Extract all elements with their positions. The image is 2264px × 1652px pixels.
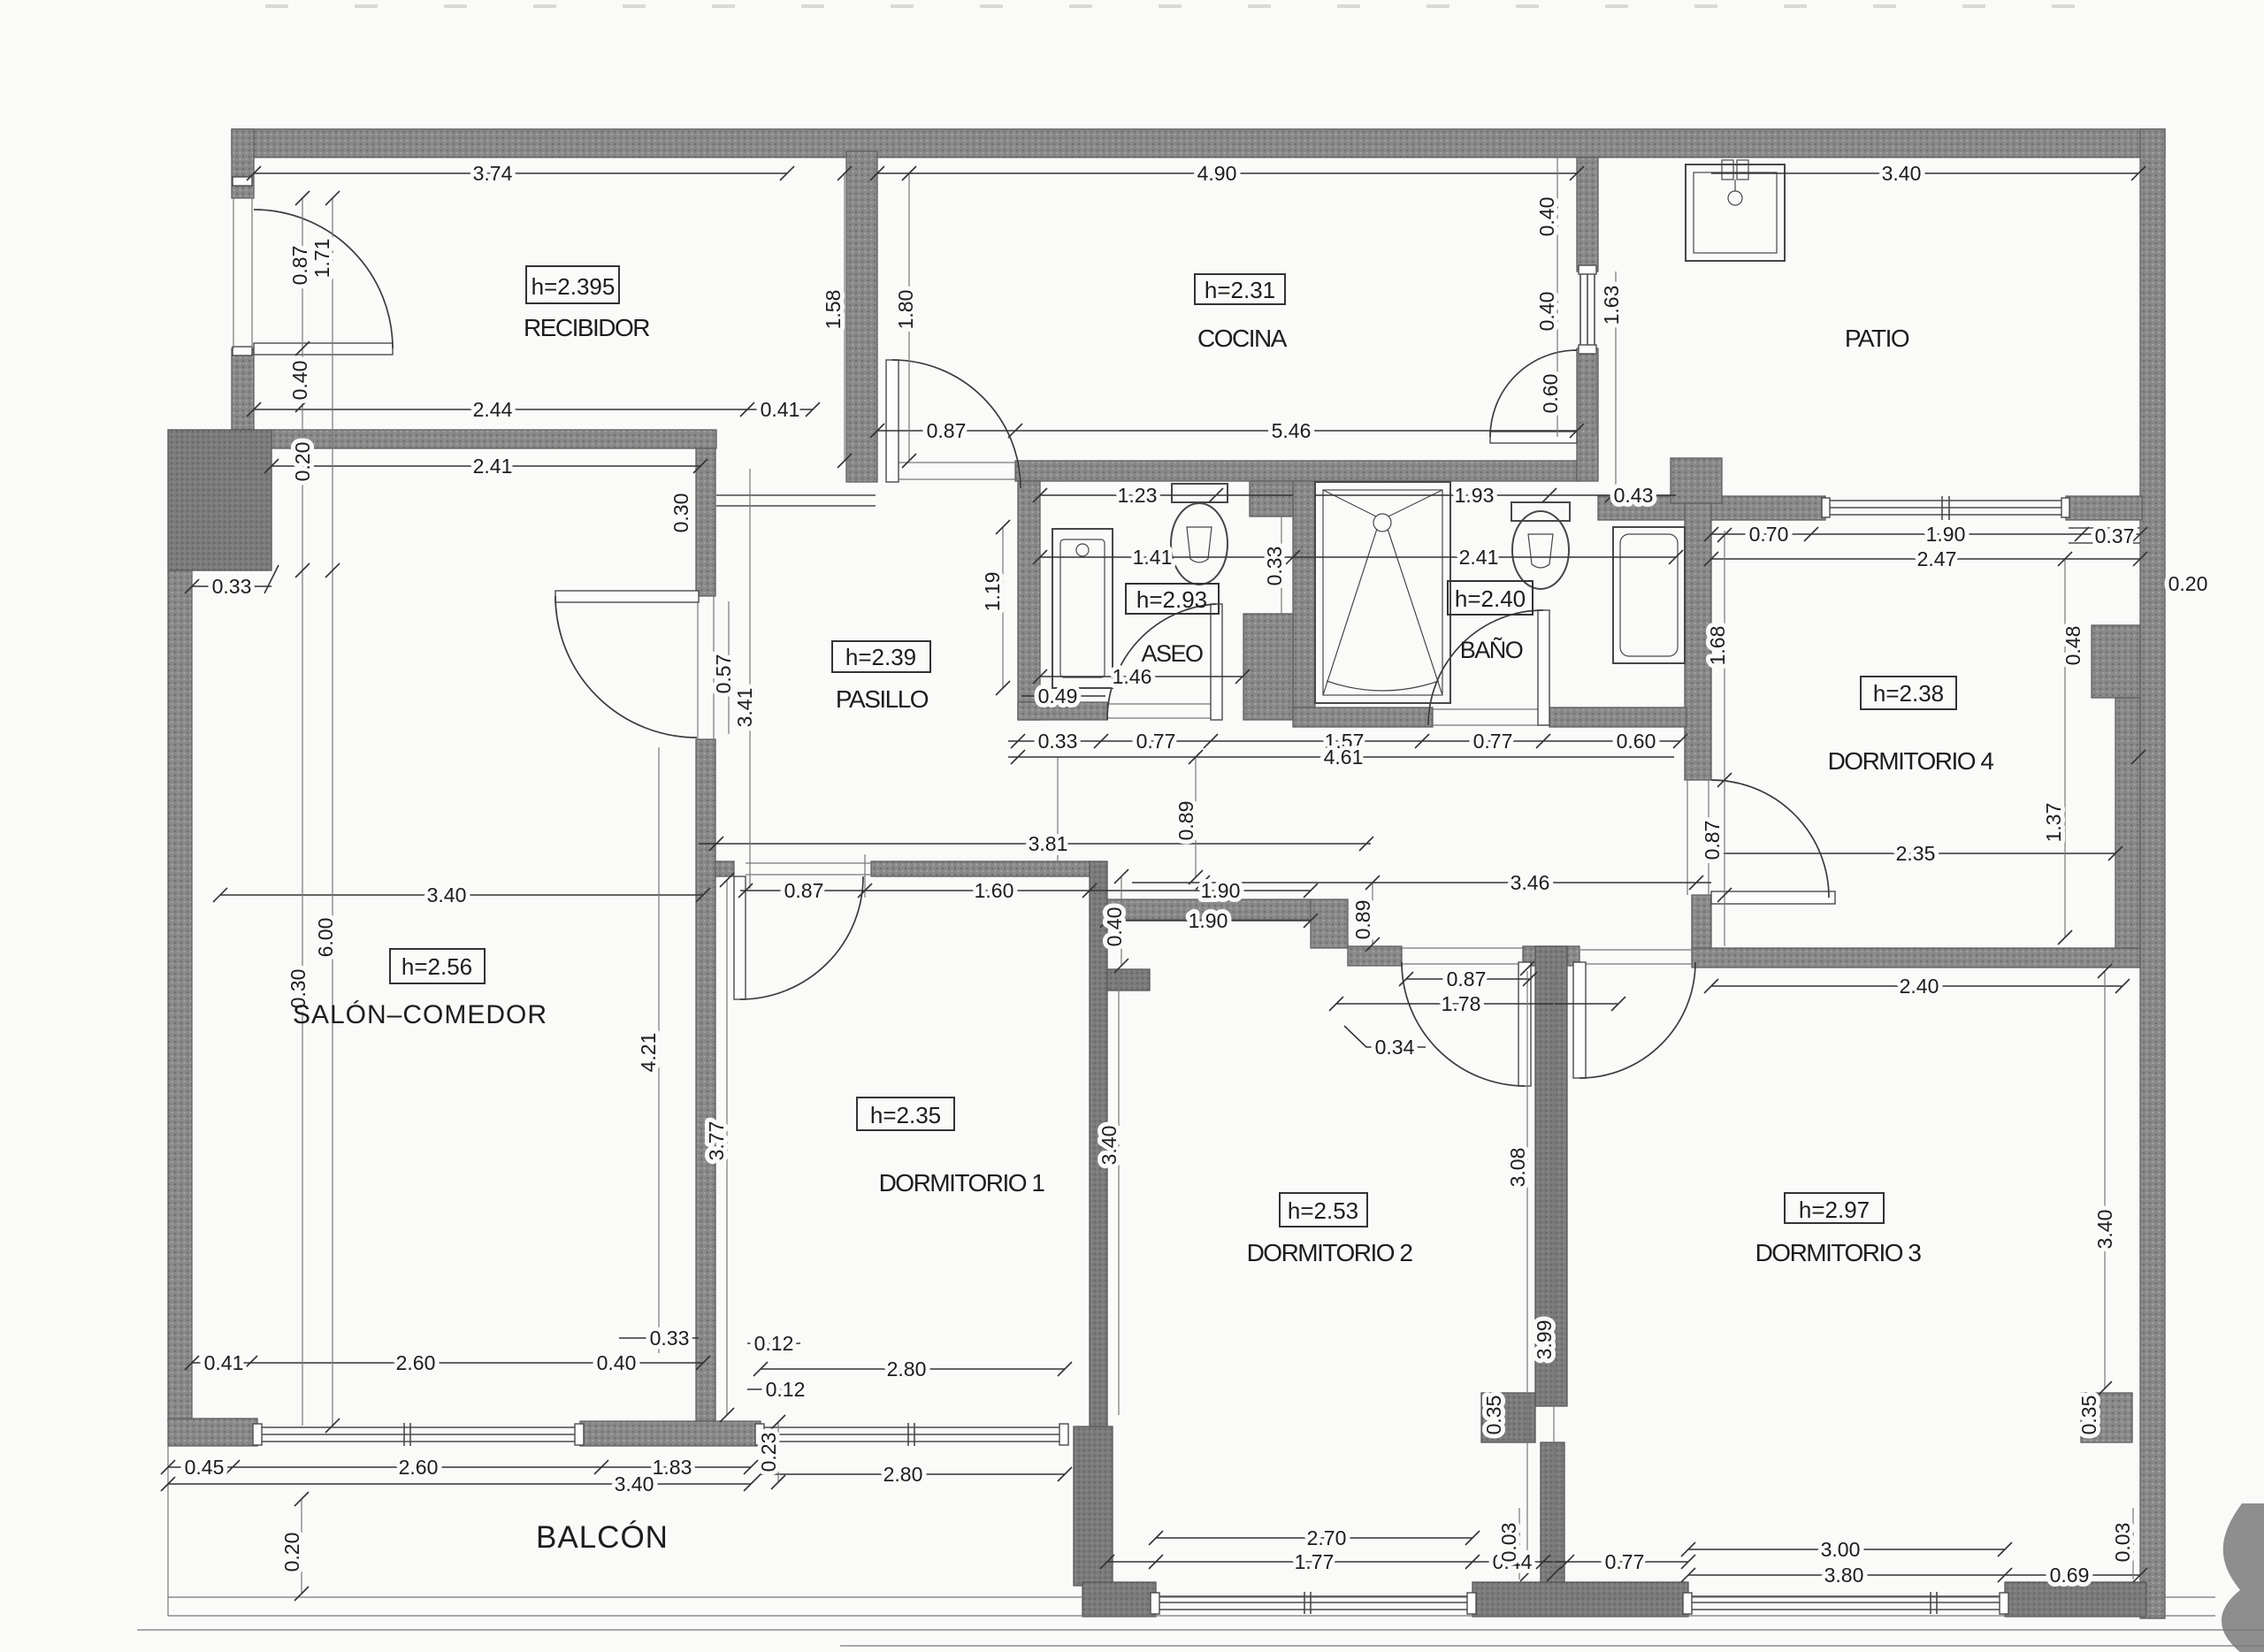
svg-text:0.20: 0.20 bbox=[2168, 572, 2208, 595]
svg-text:0.33: 0.33 bbox=[212, 575, 252, 598]
svg-text:0.41: 0.41 bbox=[761, 398, 800, 421]
svg-text:3.08: 3.08 bbox=[1506, 1148, 1529, 1188]
svg-text:2.70: 2.70 bbox=[1307, 1526, 1347, 1549]
svg-text:2.35: 2.35 bbox=[1896, 842, 1936, 865]
svg-text:3.40: 3.40 bbox=[1098, 1126, 1121, 1166]
svg-text:3.40: 3.40 bbox=[2093, 1210, 2116, 1250]
svg-text:0.89: 0.89 bbox=[1174, 801, 1197, 841]
svg-text:h=2.39: h=2.39 bbox=[845, 644, 916, 670]
svg-text:1.77: 1.77 bbox=[1295, 1550, 1335, 1573]
svg-text:2.41: 2.41 bbox=[1459, 546, 1499, 569]
svg-text:1.78: 1.78 bbox=[1442, 992, 1481, 1015]
svg-text:BALCÓN: BALCÓN bbox=[536, 1520, 669, 1555]
svg-text:3.41: 3.41 bbox=[733, 688, 756, 728]
svg-text:h=2.31: h=2.31 bbox=[1205, 277, 1275, 303]
svg-text:2.80: 2.80 bbox=[883, 1463, 923, 1486]
svg-text:0.33: 0.33 bbox=[1263, 547, 1286, 586]
svg-text:0.60: 0.60 bbox=[1617, 730, 1656, 753]
svg-text:0.87: 0.87 bbox=[1447, 967, 1487, 990]
svg-text:1.37: 1.37 bbox=[2042, 803, 2065, 843]
svg-text:0.89: 0.89 bbox=[1351, 900, 1374, 940]
svg-text:4.90: 4.90 bbox=[1197, 162, 1237, 185]
svg-text:0.40: 0.40 bbox=[1535, 292, 1558, 332]
svg-text:1.93: 1.93 bbox=[1455, 484, 1495, 507]
svg-text:3.99: 3.99 bbox=[1533, 1320, 1556, 1360]
svg-text:3.80: 3.80 bbox=[1824, 1564, 1864, 1587]
svg-text:2.80: 2.80 bbox=[887, 1358, 927, 1380]
svg-text:0.20: 0.20 bbox=[291, 442, 314, 482]
svg-text:3.00: 3.00 bbox=[1821, 1538, 1861, 1561]
svg-text:0.33: 0.33 bbox=[650, 1327, 690, 1350]
svg-text:0.30: 0.30 bbox=[669, 493, 692, 533]
svg-text:PASILLO: PASILLO bbox=[836, 685, 929, 713]
svg-text:1.90: 1.90 bbox=[1201, 879, 1241, 902]
svg-text:0.35: 0.35 bbox=[2077, 1396, 2100, 1435]
svg-text:0.77: 0.77 bbox=[1605, 1550, 1645, 1573]
svg-text:0.33: 0.33 bbox=[1038, 730, 1078, 753]
svg-text:0.35: 0.35 bbox=[1482, 1396, 1505, 1435]
svg-text:3.40: 3.40 bbox=[615, 1472, 654, 1495]
svg-text:0.20: 0.20 bbox=[280, 1533, 303, 1572]
svg-text:4.21: 4.21 bbox=[637, 1033, 660, 1073]
svg-text:0.40: 0.40 bbox=[1103, 907, 1126, 947]
svg-text:1.19: 1.19 bbox=[981, 572, 1004, 612]
svg-text:DORMITORIO 2: DORMITORIO 2 bbox=[1247, 1239, 1413, 1266]
svg-text:h=2.53: h=2.53 bbox=[1288, 1197, 1358, 1224]
svg-text:h=2.93: h=2.93 bbox=[1136, 586, 1207, 613]
svg-text:0.70: 0.70 bbox=[1749, 523, 1789, 546]
svg-text:COCINA: COCINA bbox=[1197, 325, 1288, 352]
svg-text:DORMITORIO 4: DORMITORIO 4 bbox=[1828, 747, 1994, 775]
svg-text:0.49: 0.49 bbox=[1038, 685, 1078, 707]
svg-text:DORMITORIO 1: DORMITORIO 1 bbox=[879, 1169, 1045, 1197]
svg-text:2.47: 2.47 bbox=[1917, 547, 1957, 570]
svg-text:1.90: 1.90 bbox=[1189, 909, 1228, 932]
svg-text:SALÓN–COMEDOR: SALÓN–COMEDOR bbox=[293, 1000, 547, 1029]
svg-text:3.74: 3.74 bbox=[473, 162, 513, 185]
svg-text:0.23: 0.23 bbox=[757, 1433, 780, 1472]
svg-text:3.77: 3.77 bbox=[705, 1121, 728, 1161]
svg-text:1.80: 1.80 bbox=[894, 290, 917, 330]
svg-text:0.57: 0.57 bbox=[712, 654, 735, 694]
svg-text:1.41: 1.41 bbox=[1133, 546, 1173, 569]
svg-text:2.44: 2.44 bbox=[473, 398, 513, 421]
svg-text:1.60: 1.60 bbox=[975, 879, 1014, 902]
svg-text:0.03: 0.03 bbox=[2111, 1523, 2134, 1563]
svg-text:DORMITORIO 3: DORMITORIO 3 bbox=[1755, 1239, 1922, 1266]
svg-text:2.60: 2.60 bbox=[399, 1456, 439, 1479]
svg-text:1.46: 1.46 bbox=[1113, 665, 1152, 688]
svg-text:0.60: 0.60 bbox=[1539, 374, 1562, 414]
svg-text:h=2.38: h=2.38 bbox=[1873, 680, 1944, 707]
svg-text:1.23: 1.23 bbox=[1118, 484, 1158, 507]
svg-text:0.40: 0.40 bbox=[1535, 197, 1558, 237]
svg-text:0.41: 0.41 bbox=[204, 1351, 244, 1374]
svg-text:3.81: 3.81 bbox=[1029, 832, 1068, 855]
svg-text:0.40: 0.40 bbox=[288, 361, 311, 401]
svg-text:h=2.40: h=2.40 bbox=[1455, 585, 1526, 612]
svg-text:0.37: 0.37 bbox=[2095, 524, 2135, 547]
svg-text:0.87: 0.87 bbox=[927, 419, 967, 442]
svg-text:0.87: 0.87 bbox=[1701, 821, 1724, 860]
svg-text:0.87: 0.87 bbox=[288, 246, 311, 286]
svg-text:2.60: 2.60 bbox=[396, 1351, 436, 1374]
svg-text:0.34: 0.34 bbox=[1375, 1036, 1415, 1059]
svg-text:1.90: 1.90 bbox=[1926, 523, 1966, 546]
svg-text:0.40: 0.40 bbox=[597, 1351, 637, 1374]
svg-text:0.12: 0.12 bbox=[766, 1378, 806, 1401]
svg-text:0.77: 0.77 bbox=[1136, 730, 1176, 753]
svg-text:0.69: 0.69 bbox=[2050, 1564, 2090, 1587]
svg-text:h=2.395: h=2.395 bbox=[532, 273, 616, 300]
svg-text:0.12: 0.12 bbox=[754, 1332, 794, 1355]
svg-text:1.58: 1.58 bbox=[822, 290, 845, 330]
svg-text:4.61: 4.61 bbox=[1324, 746, 1364, 769]
svg-text:ASEO: ASEO bbox=[1141, 640, 1203, 667]
svg-text:BAÑO: BAÑO bbox=[1460, 636, 1523, 663]
svg-text:0.77: 0.77 bbox=[1473, 730, 1513, 753]
svg-text:0.87: 0.87 bbox=[784, 879, 824, 902]
svg-text:h=2.97: h=2.97 bbox=[1799, 1197, 1870, 1223]
svg-text:1.63: 1.63 bbox=[1600, 286, 1623, 325]
svg-text:2.40: 2.40 bbox=[1900, 975, 1939, 998]
svg-text:1.83: 1.83 bbox=[653, 1456, 692, 1479]
svg-text:3.40: 3.40 bbox=[427, 883, 467, 906]
svg-text:0.45: 0.45 bbox=[185, 1456, 225, 1479]
svg-text:1.68: 1.68 bbox=[1706, 626, 1729, 666]
svg-text:PATIO: PATIO bbox=[1845, 325, 1909, 352]
svg-text:3.46: 3.46 bbox=[1511, 871, 1550, 894]
svg-text:0.03: 0.03 bbox=[1497, 1523, 1520, 1563]
svg-text:6.00: 6.00 bbox=[314, 918, 337, 958]
svg-text:3.40: 3.40 bbox=[1882, 162, 1922, 185]
svg-text:2.41: 2.41 bbox=[473, 455, 513, 478]
svg-text:RECIBIDOR: RECIBIDOR bbox=[524, 314, 649, 341]
svg-text:1.71: 1.71 bbox=[310, 239, 333, 279]
svg-text:0.43: 0.43 bbox=[1614, 484, 1654, 507]
svg-text:5.46: 5.46 bbox=[1272, 419, 1312, 442]
svg-text:0.48: 0.48 bbox=[2061, 626, 2084, 666]
svg-text:h=2.56: h=2.56 bbox=[402, 953, 472, 980]
svg-text:h=2.35: h=2.35 bbox=[870, 1102, 941, 1128]
